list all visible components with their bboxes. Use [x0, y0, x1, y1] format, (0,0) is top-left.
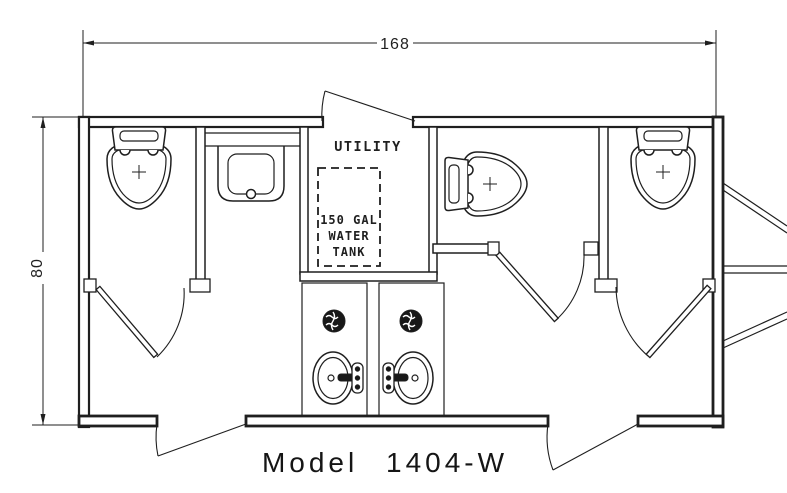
hitch-tongue-bar	[723, 266, 787, 273]
right-toilet	[631, 127, 695, 209]
width-dimension-label: 168	[380, 36, 410, 53]
bottom-wall-right-segment	[638, 416, 723, 426]
sink-basin-inner	[228, 154, 274, 194]
left-wall-door-jamb	[84, 279, 96, 292]
hitch-lower-arm	[723, 312, 787, 348]
right-floor-drain	[400, 310, 422, 332]
faucet-knob	[355, 385, 359, 389]
arrowhead-left	[83, 41, 94, 46]
hitch-upper-arm	[723, 183, 787, 233]
left-wall	[79, 117, 89, 427]
height-dimension-label: 80	[29, 258, 46, 278]
right-stall-door-leaf	[646, 285, 711, 357]
left-stall-partition-wall	[196, 127, 205, 284]
faucet-knob	[386, 367, 390, 371]
right-vanity-sink	[383, 352, 433, 404]
left-room-door-leaf	[96, 286, 157, 357]
arrowhead-up	[41, 117, 46, 128]
faucet-knob	[355, 367, 359, 371]
middle-stall-door-swing	[556, 254, 584, 320]
arrowhead-down	[41, 414, 46, 425]
dimension-width: 168	[83, 30, 716, 116]
utility-door-leaf	[325, 91, 415, 121]
floor-plan-page: 168 80 UT	[0, 0, 787, 493]
middle-stall-bottom-wall	[433, 244, 490, 253]
top-wall-left-segment	[79, 117, 323, 127]
middle-stall-door-jamb-right	[584, 242, 598, 255]
left-room-door-swing	[157, 288, 184, 357]
utility-room: UTILITY 150 GAL WATER TANK	[318, 139, 402, 266]
middle-right-divider-wall	[599, 127, 608, 284]
trailer-hitch	[723, 183, 787, 348]
water-tank-label-line1: 150 GAL	[320, 213, 378, 227]
utility-room-label: UTILITY	[334, 139, 401, 155]
floor-plan-drawing: 168 80 UT	[0, 0, 787, 493]
counter-back-lines	[205, 133, 300, 146]
utility-bottom-wall	[300, 272, 437, 281]
dimension-height: 80	[29, 117, 79, 425]
right-stall-door-swing	[616, 287, 648, 356]
water-tank-label-line3: TANK	[333, 245, 366, 259]
divider-wall-end-block	[595, 279, 617, 292]
left-floor-drain	[323, 310, 345, 332]
right-entry-door-leaf	[553, 424, 638, 470]
left-entry-door-leaf	[158, 424, 246, 456]
faucet-knob	[355, 376, 359, 380]
middle-toilet	[445, 152, 527, 216]
counter-sink-left-room	[205, 133, 300, 201]
model-title: Model 1404-W	[262, 447, 508, 478]
faucet-knob	[386, 376, 390, 380]
left-toilet	[107, 127, 171, 209]
left-entry-door-swing	[156, 424, 158, 456]
left-vanity-sink	[313, 352, 363, 404]
utility-left-wall	[300, 127, 308, 274]
bottom-wall-center-segment	[246, 416, 548, 426]
faucet-knob	[386, 385, 390, 389]
middle-stall-door-jamb-left	[488, 242, 499, 255]
right-wall	[713, 117, 723, 427]
top-wall-right-segment	[413, 117, 723, 127]
water-tank-label-line2: WATER	[328, 229, 369, 243]
sink-drain-notch	[247, 190, 256, 199]
vanity-compartments	[302, 283, 444, 416]
bottom-wall-left-segment	[79, 416, 157, 426]
arrowhead-right	[705, 41, 716, 46]
right-entry-door-swing	[547, 424, 553, 470]
left-stall-wall-end-block	[190, 279, 210, 292]
middle-stall-door-leaf	[496, 252, 558, 321]
